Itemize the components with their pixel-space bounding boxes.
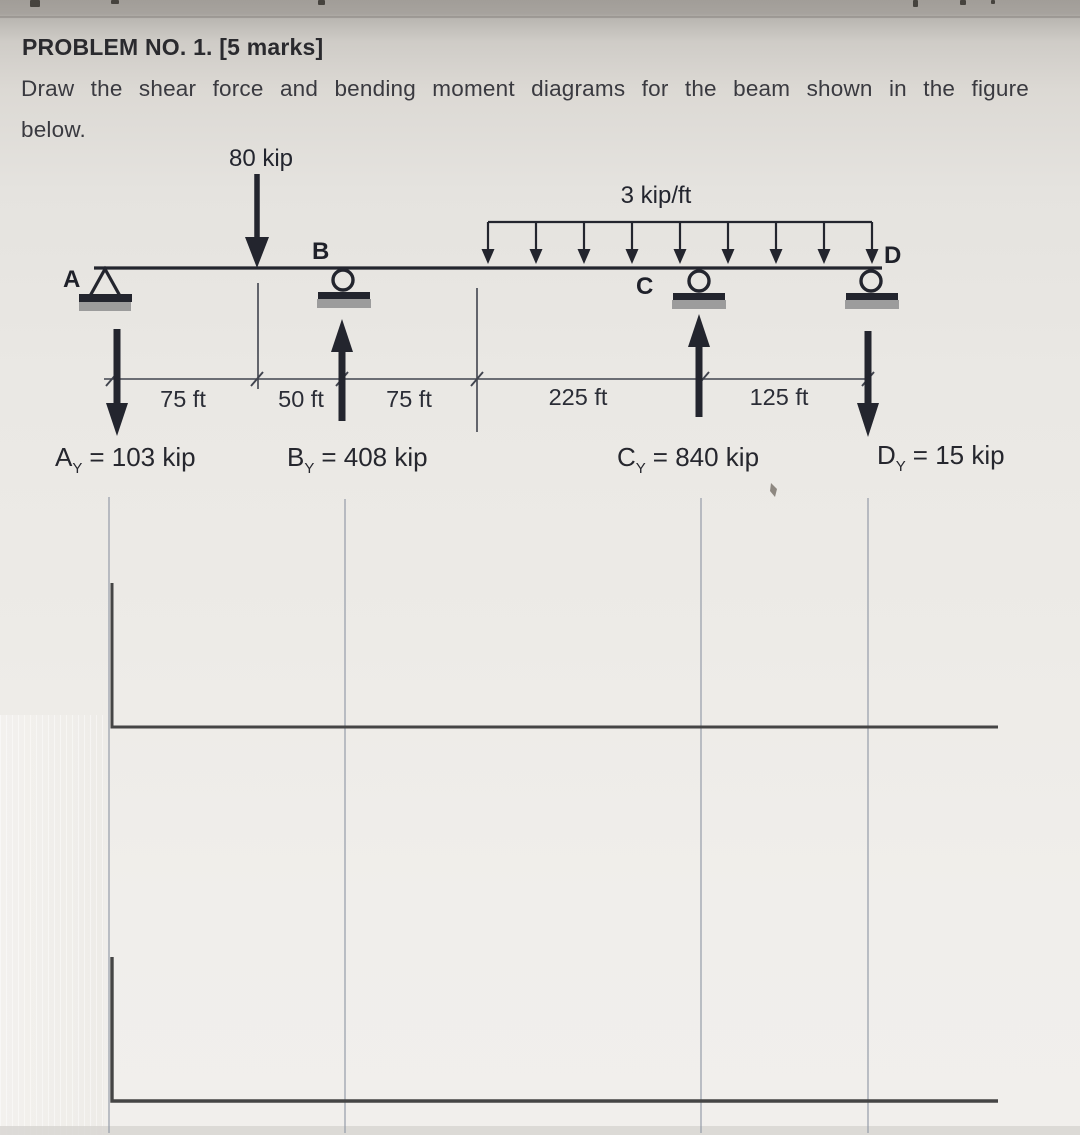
dimension-label-3: 225 ft xyxy=(549,384,608,410)
dimension-label-0: 75 ft xyxy=(160,386,206,412)
reaction-label-b: BY= 408 kip xyxy=(287,442,428,477)
distributed-load xyxy=(482,222,879,264)
reaction-label-a: AY= 103 kip xyxy=(55,442,196,477)
load-arrows xyxy=(482,222,879,264)
reaction-label-c: CY= 840 kip xyxy=(617,442,759,477)
node-label-d: D xyxy=(884,242,901,269)
node-label-a: A xyxy=(63,266,80,293)
distributed-load-label: 3 kip/ft xyxy=(621,182,692,209)
point-load-arrow-icon xyxy=(245,174,269,268)
support-bar xyxy=(673,293,725,300)
photographed-page: PROBLEM NO. 1. [5 marks] Draw the shear … xyxy=(0,0,1080,1135)
support-b-roller-icon xyxy=(317,270,371,308)
arrow-head xyxy=(106,403,128,436)
point-load-label: 80 kip xyxy=(229,145,293,172)
support-base xyxy=(79,302,131,311)
arrow-head xyxy=(331,319,353,352)
sfd-axis xyxy=(112,583,998,727)
node-label-b: B xyxy=(312,238,329,265)
support-bar xyxy=(79,294,132,302)
reaction-arrow-d-down-icon xyxy=(857,331,879,437)
support-d-roller-icon xyxy=(845,271,899,309)
support-a-pin-icon xyxy=(79,269,132,311)
support-base xyxy=(672,300,726,309)
support-c-roller-icon xyxy=(672,271,726,309)
cursor-mark-icon xyxy=(770,483,777,497)
dimension-label-1: 50 ft xyxy=(278,386,324,412)
pin-triangle xyxy=(90,269,120,296)
arrow-head xyxy=(245,237,269,268)
beam-figure: A B C D 80 kip 3 kip/ft xyxy=(0,0,1080,1135)
roller-circle xyxy=(333,270,353,290)
reaction-arrow-b-up-icon xyxy=(331,319,353,421)
dimension-label-2: 75 ft xyxy=(386,386,432,412)
roller-circle xyxy=(689,271,709,291)
support-base xyxy=(845,300,899,309)
support-bar xyxy=(846,293,898,300)
reaction-arrow-c-up-icon xyxy=(688,314,710,417)
bmd-axis xyxy=(112,957,998,1101)
node-label-c: C xyxy=(636,273,653,300)
reaction-label-d: DY= 15 kip xyxy=(877,440,1005,475)
arrow-head xyxy=(857,403,879,437)
support-base xyxy=(317,299,371,308)
dimension-label-4: 125 ft xyxy=(750,384,809,410)
answer-grid xyxy=(109,497,998,1133)
roller-circle xyxy=(861,271,881,291)
support-bar xyxy=(318,292,370,299)
arrow-head xyxy=(688,314,710,347)
